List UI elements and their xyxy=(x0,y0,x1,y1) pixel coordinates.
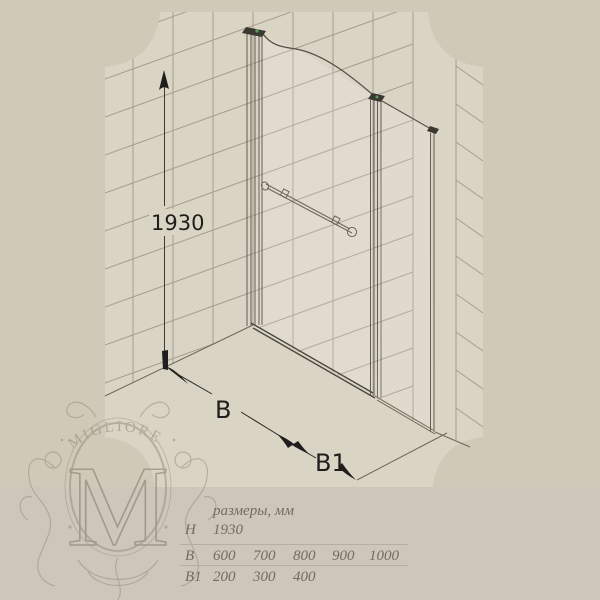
height-dimension-label: 1930 xyxy=(151,211,204,235)
fixed-side-panel xyxy=(375,101,439,434)
row-value: 300 xyxy=(253,570,276,585)
size-table-title: размеры, мм xyxy=(213,504,294,519)
stile-accent-dot xyxy=(376,96,379,99)
side-panel-glass xyxy=(377,102,433,431)
width-dimension-label: B xyxy=(215,396,231,424)
tile-line xyxy=(456,28,483,47)
row-value: 700 xyxy=(253,549,276,564)
row-param: H xyxy=(185,523,196,538)
row-param: B xyxy=(185,549,194,564)
row-value: 900 xyxy=(332,549,355,564)
row-value: 400 xyxy=(293,570,316,585)
logo-monogram: M xyxy=(67,443,169,570)
row-value: 800 xyxy=(293,549,316,564)
table-rule xyxy=(180,544,408,545)
table-row: B1 200 300 400 xyxy=(180,570,420,586)
size-table: размеры, мм H 1930 B 600 700 800 900 100… xyxy=(180,500,420,595)
hinge-accent-dot xyxy=(255,29,258,32)
table-row: B 600 700 800 900 1000 xyxy=(180,549,420,565)
row-value: 1930 xyxy=(213,523,243,538)
side-dimension-label: B1 xyxy=(315,449,347,477)
table-rule xyxy=(180,565,408,566)
row-param: B1 xyxy=(185,570,202,585)
table-row: H 1930 xyxy=(180,523,420,539)
row-value: 200 xyxy=(213,570,236,585)
row-value: 1000 xyxy=(369,549,399,564)
row-value: 600 xyxy=(213,549,236,564)
